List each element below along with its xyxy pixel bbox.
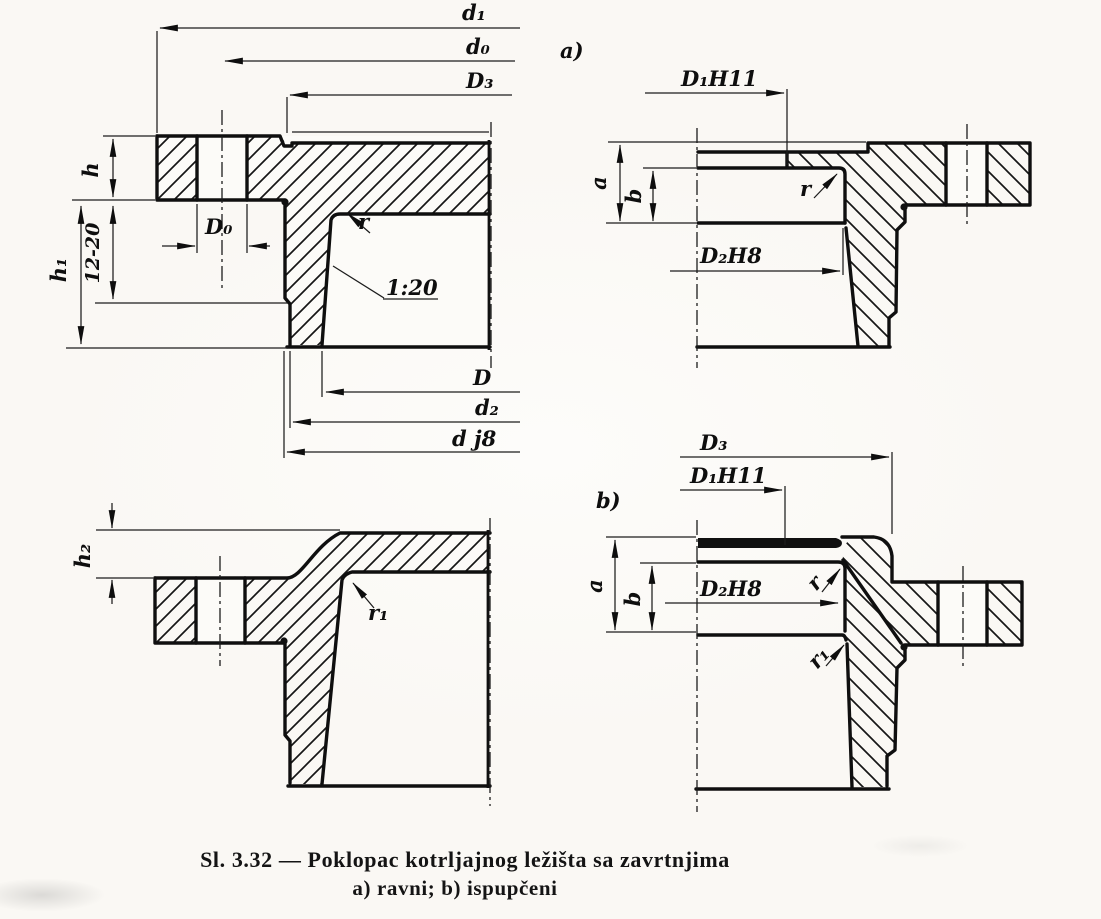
corner-ink-dot (900, 643, 907, 650)
corner-ink-dot (900, 203, 907, 210)
dim-label-h: h (78, 162, 103, 177)
taper-label: 1:20 (386, 275, 438, 300)
view-tag-b: b) (596, 488, 621, 513)
dim-label-a: a (586, 176, 611, 190)
view-convex-cover-left-half: h₂ r₁ (70, 503, 490, 806)
view-flat-cover-right-half: a) D₁H11 a b r D₂H8 (560, 38, 1030, 368)
fillet-label-r1: r₁ (802, 642, 834, 674)
figure-caption-title: Sl. 3.32 — Poklopac kotrljajnog ležišta … (150, 847, 780, 873)
dim-label-h1: h₁ (46, 258, 71, 282)
dim-label-D1: D₁H11 (680, 66, 757, 91)
dim-label-D2: D₂H8 (699, 576, 762, 601)
dim-label-12-20: 12-20 (82, 223, 104, 284)
fillet-label-r: r (358, 209, 371, 234)
dim-label-D0: D₀ (204, 214, 232, 239)
bearing-cover-drawing: d₁ d₀ D₃ h 12-20 h₁ D₀ r 1:20 D d₂ (0, 0, 1101, 840)
dim-label-d2: d₂ (475, 395, 499, 420)
dim-label-d0: d₀ (466, 34, 490, 59)
thin-lip-solid-section (698, 538, 842, 548)
corner-ink-dot (281, 198, 288, 205)
dim-label-a: a (582, 579, 607, 593)
outline-inner-ceiling-taper (322, 572, 490, 784)
dim-label-D2: D₂H8 (699, 243, 762, 268)
leader-r (814, 174, 837, 198)
dim-label-b: b (620, 592, 645, 607)
dim-label-D: D (472, 365, 492, 390)
hatch-flange-left (157, 136, 197, 200)
corner-ink-dot (280, 637, 287, 644)
view-flat-cover-left-half: d₁ d₀ D₃ h 12-20 h₁ D₀ r 1:20 D d₂ (46, 0, 520, 458)
dim-label-dj8: d j8 (452, 426, 497, 451)
dim-label-d1: d₁ (462, 0, 486, 25)
fillet-label-r: r (801, 569, 828, 595)
dim-label-h2: h₂ (70, 544, 95, 568)
dim-label-D3: D₃ (465, 68, 493, 93)
view-convex-cover-right-half: b) D₃ D₁H11 a b D₂H8 r r₁ (582, 430, 1022, 812)
figure-caption-line2: a) ravni; b) ispupčeni (352, 876, 557, 900)
bore-bottom-face (698, 635, 846, 640)
scanned-figure-page: { "figure": { "caption_line1": "Sl. 3.32… (0, 0, 1101, 919)
figure-caption-subtitle: a) ravni; b) ispupčeni (150, 876, 760, 901)
view-tag-a: a) (560, 38, 584, 63)
fillet-label-r: r (800, 176, 813, 201)
dim-label-D3: D₃ (699, 430, 727, 455)
dim-label-b: b (621, 189, 646, 204)
dim-label-D1: D₁H11 (689, 463, 766, 488)
figure-caption-line1: Sl. 3.32 — Poklopac kotrljajnog ležišta … (200, 847, 730, 872)
hatch-body (840, 537, 1022, 787)
fillet-label-r1: r₁ (368, 600, 388, 625)
hatch-body (787, 143, 1030, 347)
